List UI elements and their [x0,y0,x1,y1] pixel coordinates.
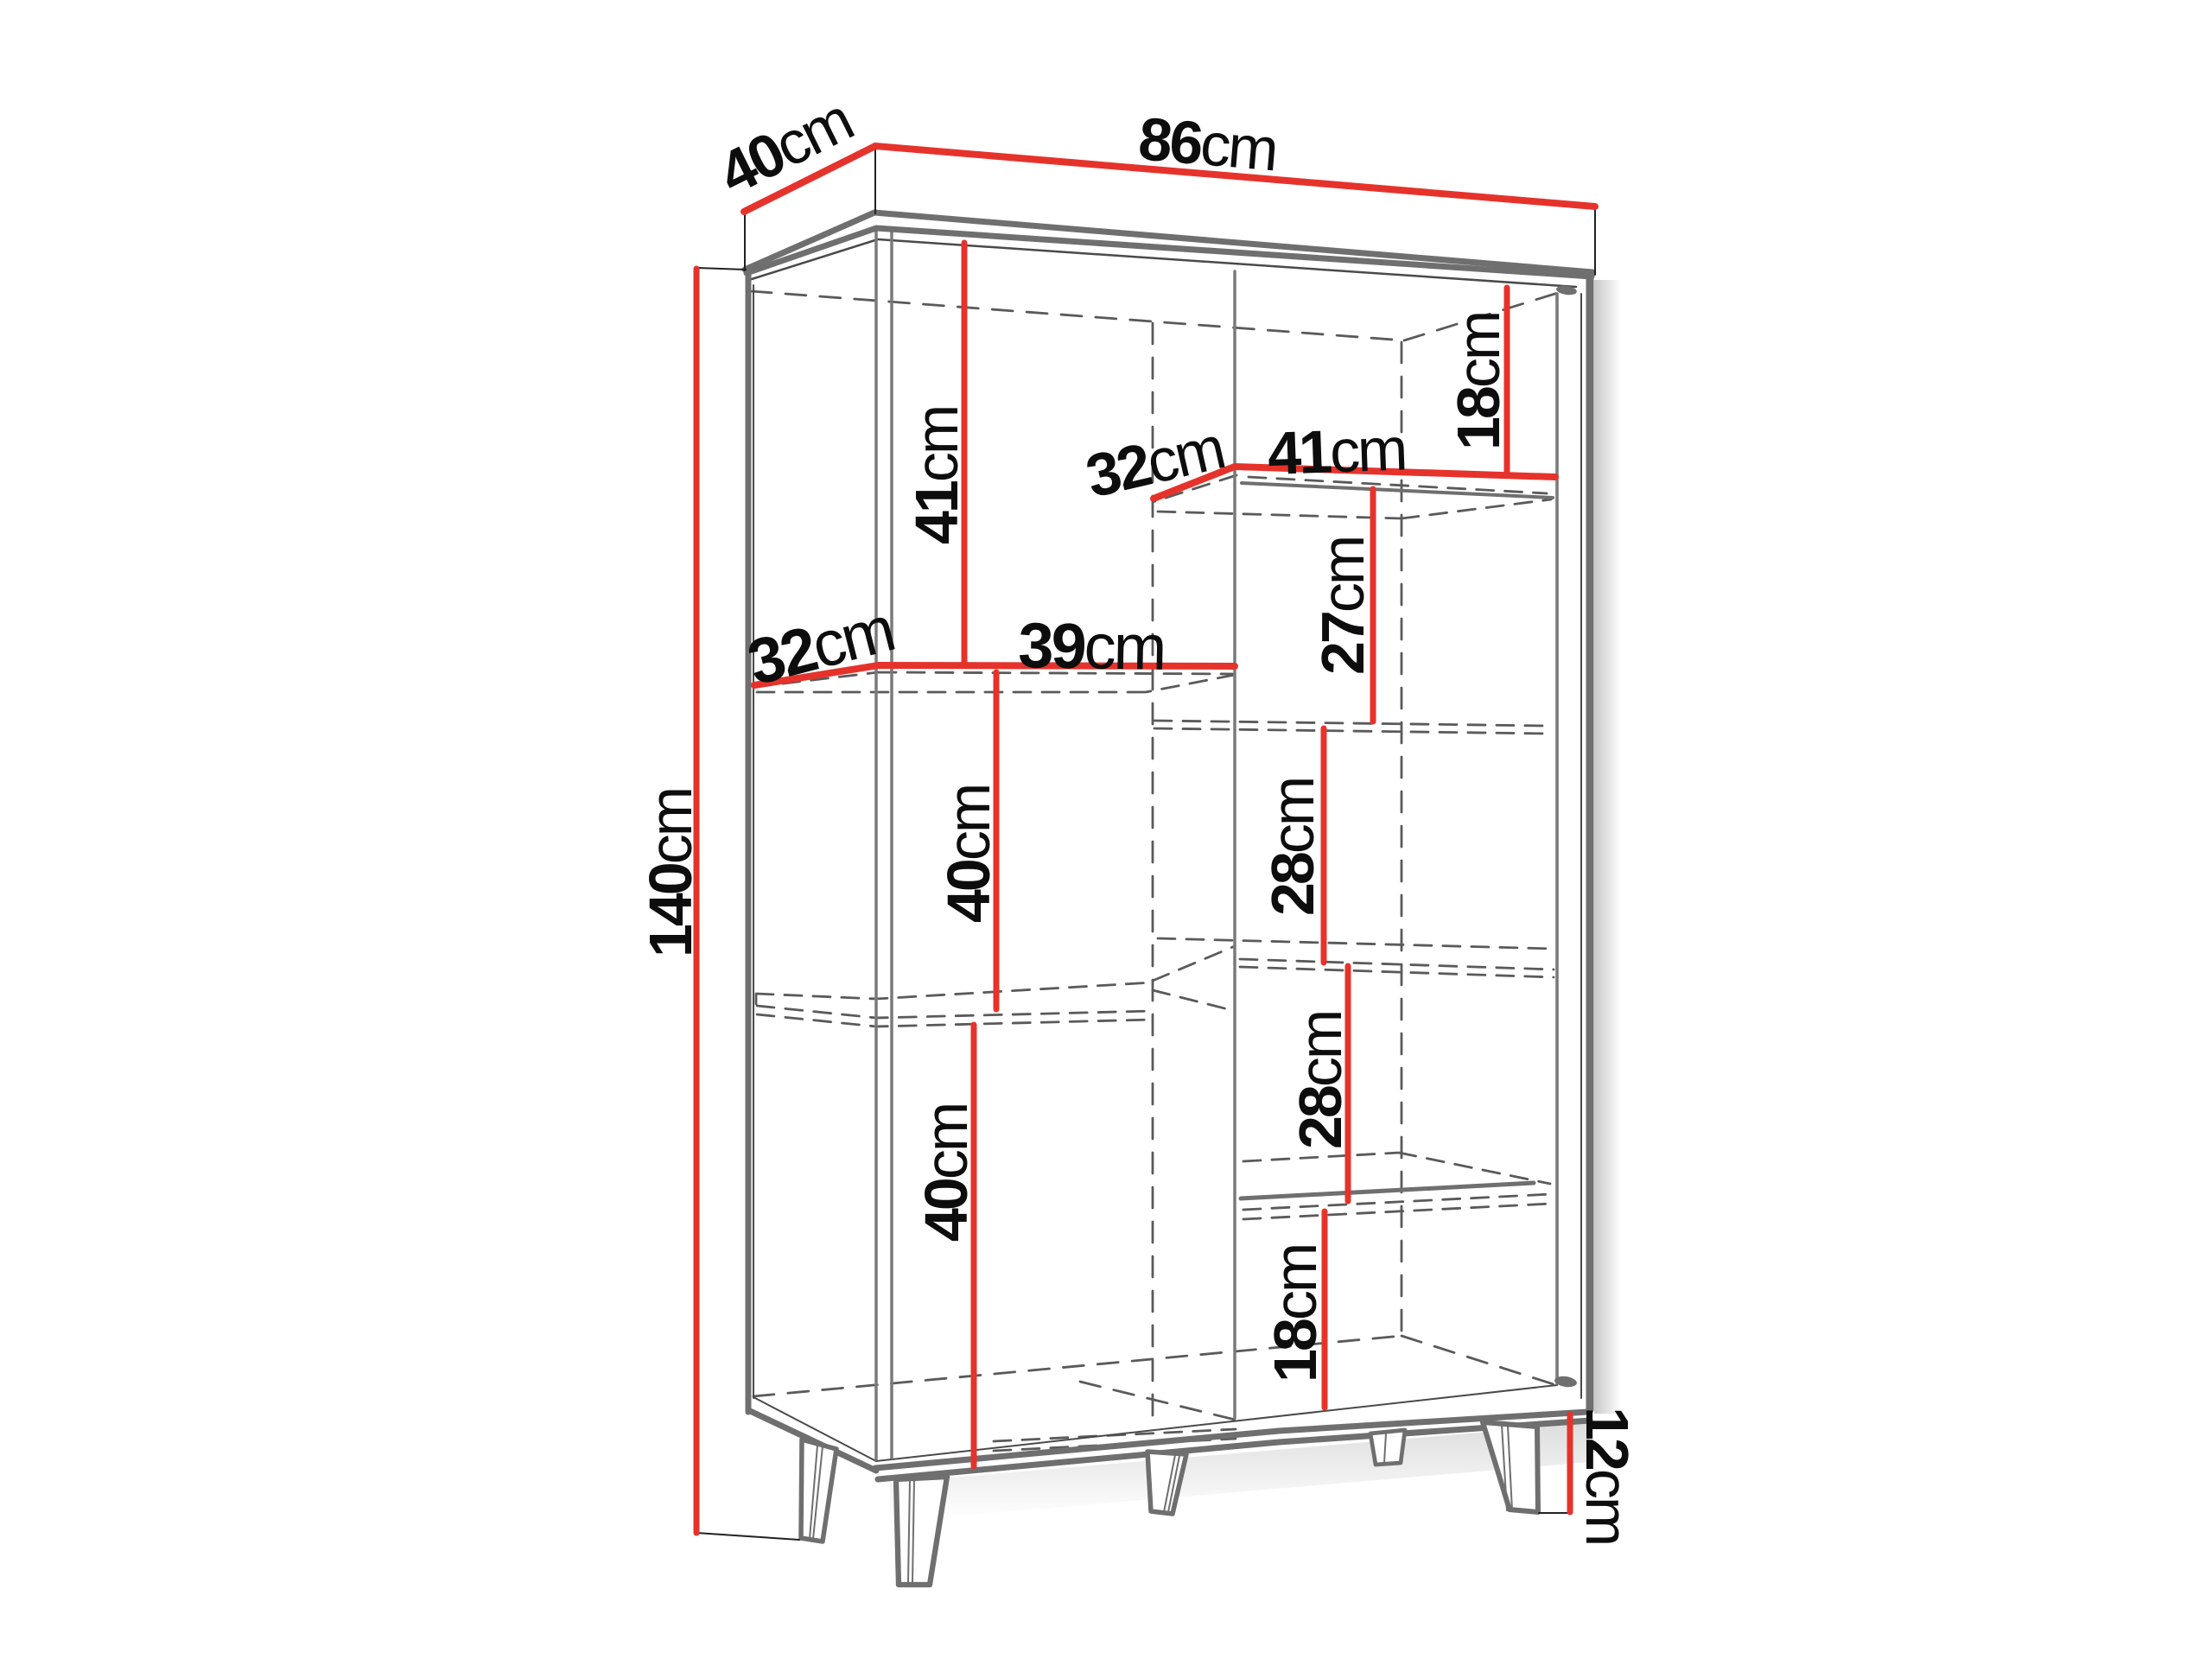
svg-text:140cm: 140cm [637,789,704,957]
svg-text:40cm: 40cm [912,1104,980,1242]
svg-text:12cm: 12cm [1573,1407,1641,1544]
svg-text:39cm: 39cm [1018,609,1165,683]
svg-text:28cm: 28cm [1287,1012,1354,1149]
svg-text:18cm: 18cm [1445,313,1512,450]
svg-text:40cm: 40cm [935,785,1002,923]
svg-text:18cm: 18cm [1262,1245,1329,1382]
svg-text:28cm: 28cm [1259,779,1326,916]
svg-text:41cm: 41cm [1267,415,1407,487]
svg-text:27cm: 27cm [1309,537,1376,675]
svg-text:86cm: 86cm [1136,105,1279,183]
svg-text:41cm: 41cm [903,407,970,544]
